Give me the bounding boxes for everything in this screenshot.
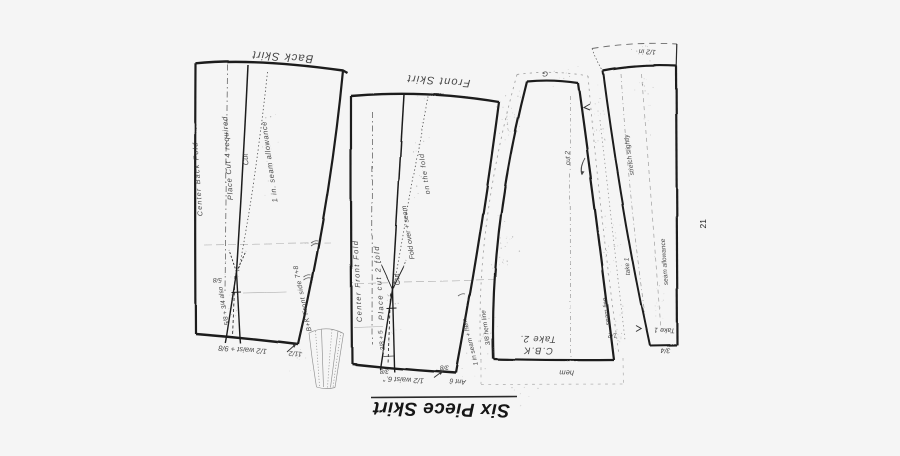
svg-text:21: 21 bbox=[698, 219, 708, 229]
svg-text:3/4: 3/4 bbox=[660, 346, 670, 353]
svg-text:Take 2.: Take 2. bbox=[519, 333, 556, 345]
svg-text:C.B.K: C.B.K bbox=[523, 344, 553, 356]
svg-text:1/2: 1/2 bbox=[608, 332, 617, 339]
svg-text:Six Piece Skirt: Six Piece Skirt bbox=[373, 397, 511, 420]
svg-text:11/2: 11/2 bbox=[288, 349, 302, 357]
svg-text:Take 1: Take 1 bbox=[654, 326, 675, 334]
svg-text:5/8: 5/8 bbox=[213, 276, 222, 283]
svg-text:Cut: Cut bbox=[240, 152, 250, 165]
svg-text:Cut: Cut bbox=[392, 272, 402, 285]
svg-text:G: G bbox=[542, 70, 548, 79]
svg-text:hem: hem bbox=[559, 368, 574, 377]
svg-text:1/2 in: 1/2 in bbox=[639, 47, 657, 55]
svg-text:3/8: 3/8 bbox=[440, 364, 449, 371]
svg-text:cut 2: cut 2 bbox=[564, 150, 572, 165]
svg-text:3/8: 3/8 bbox=[380, 368, 389, 375]
